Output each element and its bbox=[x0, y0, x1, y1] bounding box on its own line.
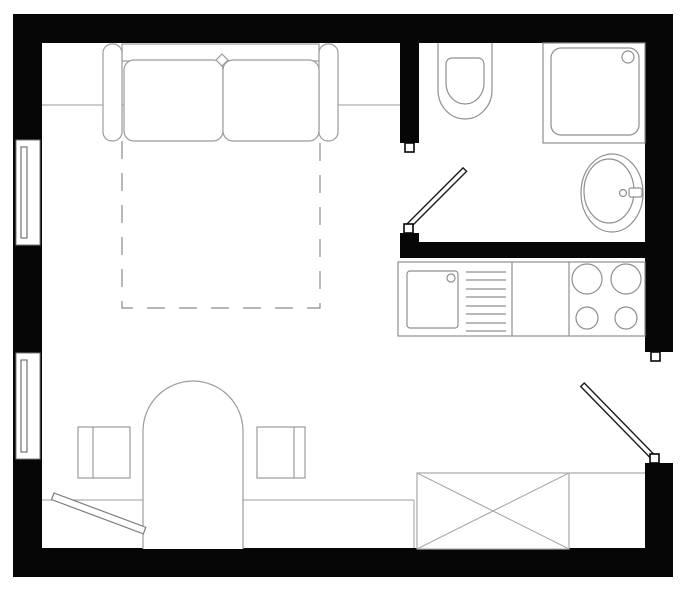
window-glazing bbox=[21, 147, 27, 238]
window-lower-left bbox=[16, 353, 40, 459]
window-glazing bbox=[21, 360, 27, 452]
dining-table-arched bbox=[143, 381, 243, 549]
washbasin bbox=[581, 154, 643, 232]
wall-right-lower bbox=[645, 463, 673, 577]
sink-drain bbox=[447, 274, 455, 282]
shower-tray bbox=[543, 43, 645, 143]
toilet-seat bbox=[446, 58, 484, 104]
window-opening bbox=[16, 140, 40, 245]
chair-right bbox=[257, 427, 305, 478]
entrance-door bbox=[581, 352, 660, 463]
sofa-seat-cushion-right bbox=[223, 60, 319, 141]
entrance-door-jamb-bottom bbox=[650, 454, 659, 463]
sofa bbox=[103, 44, 338, 141]
wall-bathroom-west-upper bbox=[400, 43, 419, 143]
burner-large-right bbox=[611, 264, 641, 294]
basin-faucet bbox=[629, 188, 642, 197]
toilet bbox=[438, 43, 492, 119]
kitchen-sink bbox=[407, 271, 458, 328]
bathroom-door-jamb-bottom bbox=[404, 224, 413, 233]
burner-small-right bbox=[615, 307, 637, 329]
sofa-armrest-right bbox=[319, 44, 338, 141]
kitchen-counter bbox=[398, 262, 645, 336]
fold-out-bed-dashed-outline bbox=[122, 141, 320, 308]
entrance-door-jamb-top bbox=[651, 352, 660, 361]
bathroom-door-jamb-top bbox=[405, 143, 414, 152]
burner-large-left bbox=[572, 264, 602, 294]
wall-bathroom-south bbox=[400, 242, 645, 258]
wall-left bbox=[13, 14, 42, 577]
chair-seat bbox=[257, 427, 305, 478]
sofa-armrest-left bbox=[103, 44, 122, 141]
bathroom-door-leaf bbox=[406, 168, 466, 228]
window-opening bbox=[16, 353, 40, 459]
chair-left bbox=[78, 427, 130, 478]
bathroom-door bbox=[404, 143, 467, 233]
wall-top bbox=[13, 14, 673, 43]
basin-drain bbox=[620, 190, 627, 197]
wardrobe-crossed bbox=[417, 473, 569, 549]
chair-seat bbox=[78, 427, 130, 478]
dining-nook bbox=[52, 381, 305, 549]
wall-bottom bbox=[13, 548, 673, 577]
sofa-seat-cushion-left bbox=[124, 60, 223, 141]
entrance-door-leaf bbox=[581, 383, 655, 459]
window-upper-left bbox=[16, 140, 40, 245]
wall-right-upper bbox=[645, 14, 673, 352]
bathroom bbox=[404, 43, 645, 233]
floor-door-leaf-bottom-left bbox=[52, 493, 146, 534]
shower-drain bbox=[622, 51, 634, 63]
burner-small-left bbox=[576, 307, 598, 329]
floor-plan bbox=[0, 0, 688, 602]
floor-plan-canvas bbox=[0, 0, 688, 602]
